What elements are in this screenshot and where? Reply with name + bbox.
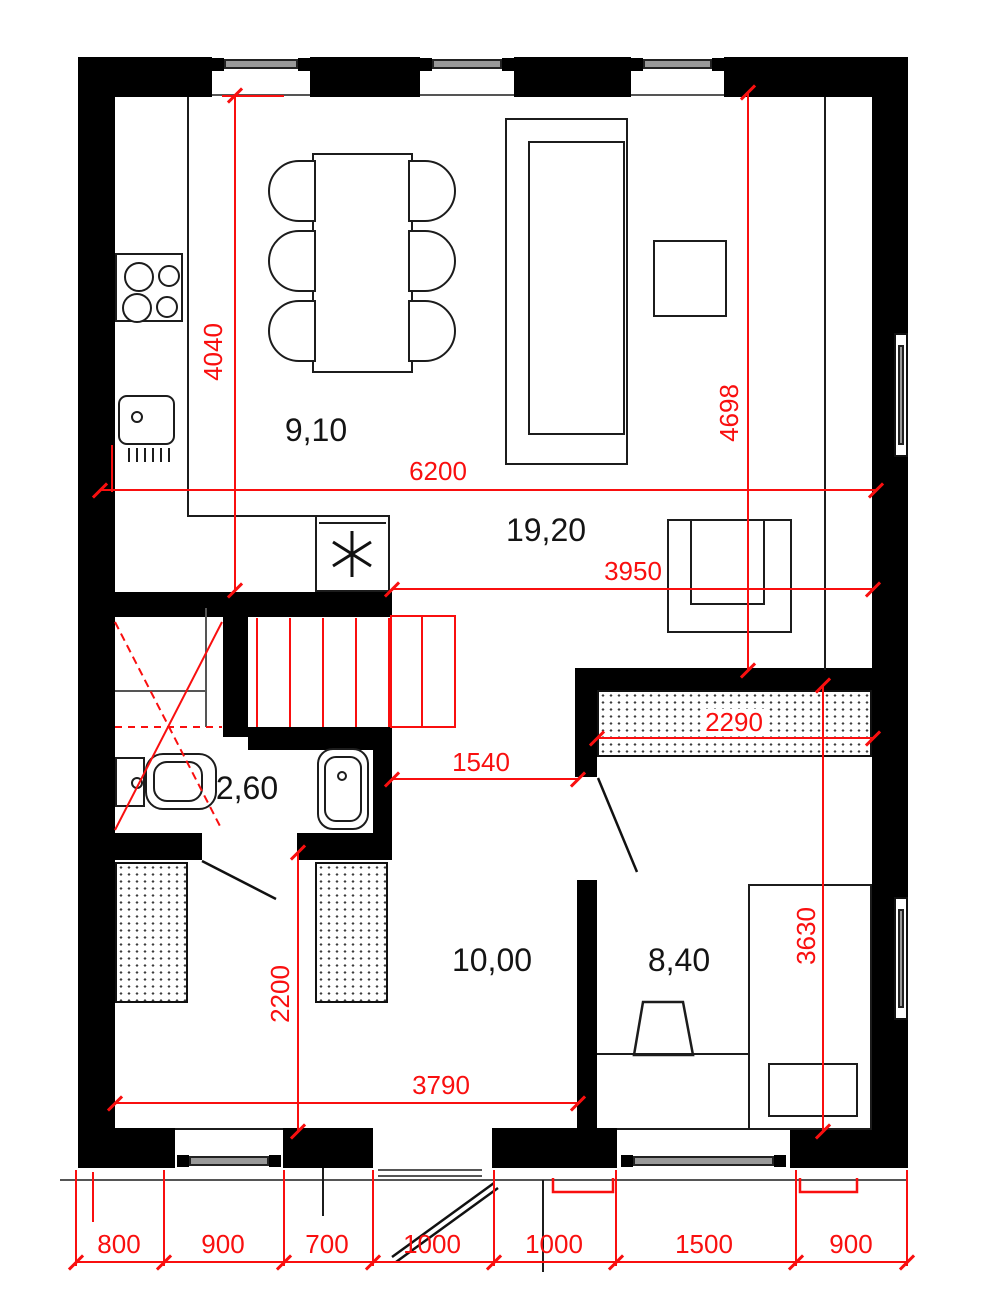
dim-ext [493,1170,495,1266]
dim-line-living-width [100,489,876,491]
dim-line-bedroom-depth [822,685,824,1131]
opening-bracket [553,1178,613,1192]
dim-ext [163,1170,165,1266]
dim-line-room-depth [297,852,299,1131]
dim-ext [906,1170,908,1266]
dim-label-room-width: 3790 [412,1072,470,1098]
dim-label-kitchen-depth: 4040 [200,323,226,381]
dim-line-living-depth [747,92,749,670]
desk-chair [634,1002,693,1055]
dim-line-kitchen-depth [234,95,236,590]
dim-label-bottom-3: 1000 [403,1231,461,1257]
opening-bracket [800,1178,857,1192]
dim-ext [111,445,113,492]
dim-ext [615,1170,617,1266]
bathroom-door-swing [202,861,276,899]
dim-label-bottom-2: 700 [305,1231,348,1257]
room-label-living: 19,20 [506,514,586,546]
dim-label-closet-width: 2290 [702,709,766,735]
dim-label-living-inner-width: 3950 [604,558,662,584]
room-label-bedroom: 8,40 [648,944,710,976]
dim-line-living-inner-width [392,588,873,590]
dim-label-bottom-4: 1000 [525,1231,583,1257]
dim-ext [372,1170,374,1266]
dim-label-bedroom-depth: 3630 [793,904,819,968]
dim-label-living-width: 6200 [409,458,467,484]
floor-plan: 9,10 19,20 2,60 10,00 8,40 4040 6200 395… [0,0,999,1309]
dim-label-hall-width: 1540 [452,749,510,775]
dim-label-living-depth: 4698 [716,384,742,442]
room-label-bathroom: 2,60 [216,772,278,804]
dim-label-bottom-5: 1500 [675,1231,733,1257]
room-label-hall-room: 10,00 [452,944,532,976]
dim-ext [283,1170,285,1266]
dim-line-hall-width [392,778,578,780]
bedroom-door-swing [598,778,637,872]
room-label-kitchen: 9,10 [285,414,347,446]
dim-ext [795,1170,797,1266]
dim-label-bottom-6: 900 [829,1231,872,1257]
line-overlay [0,0,999,1309]
dim-line-closet-width [597,737,873,739]
dim-label-room-depth: 2200 [267,965,293,1023]
dim-ext [75,1170,77,1266]
dim-label-bottom-1: 900 [201,1231,244,1257]
dim-ext [92,1172,94,1222]
dim-line-room-width [115,1102,578,1104]
dim-label-bottom-0: 800 [97,1231,140,1257]
